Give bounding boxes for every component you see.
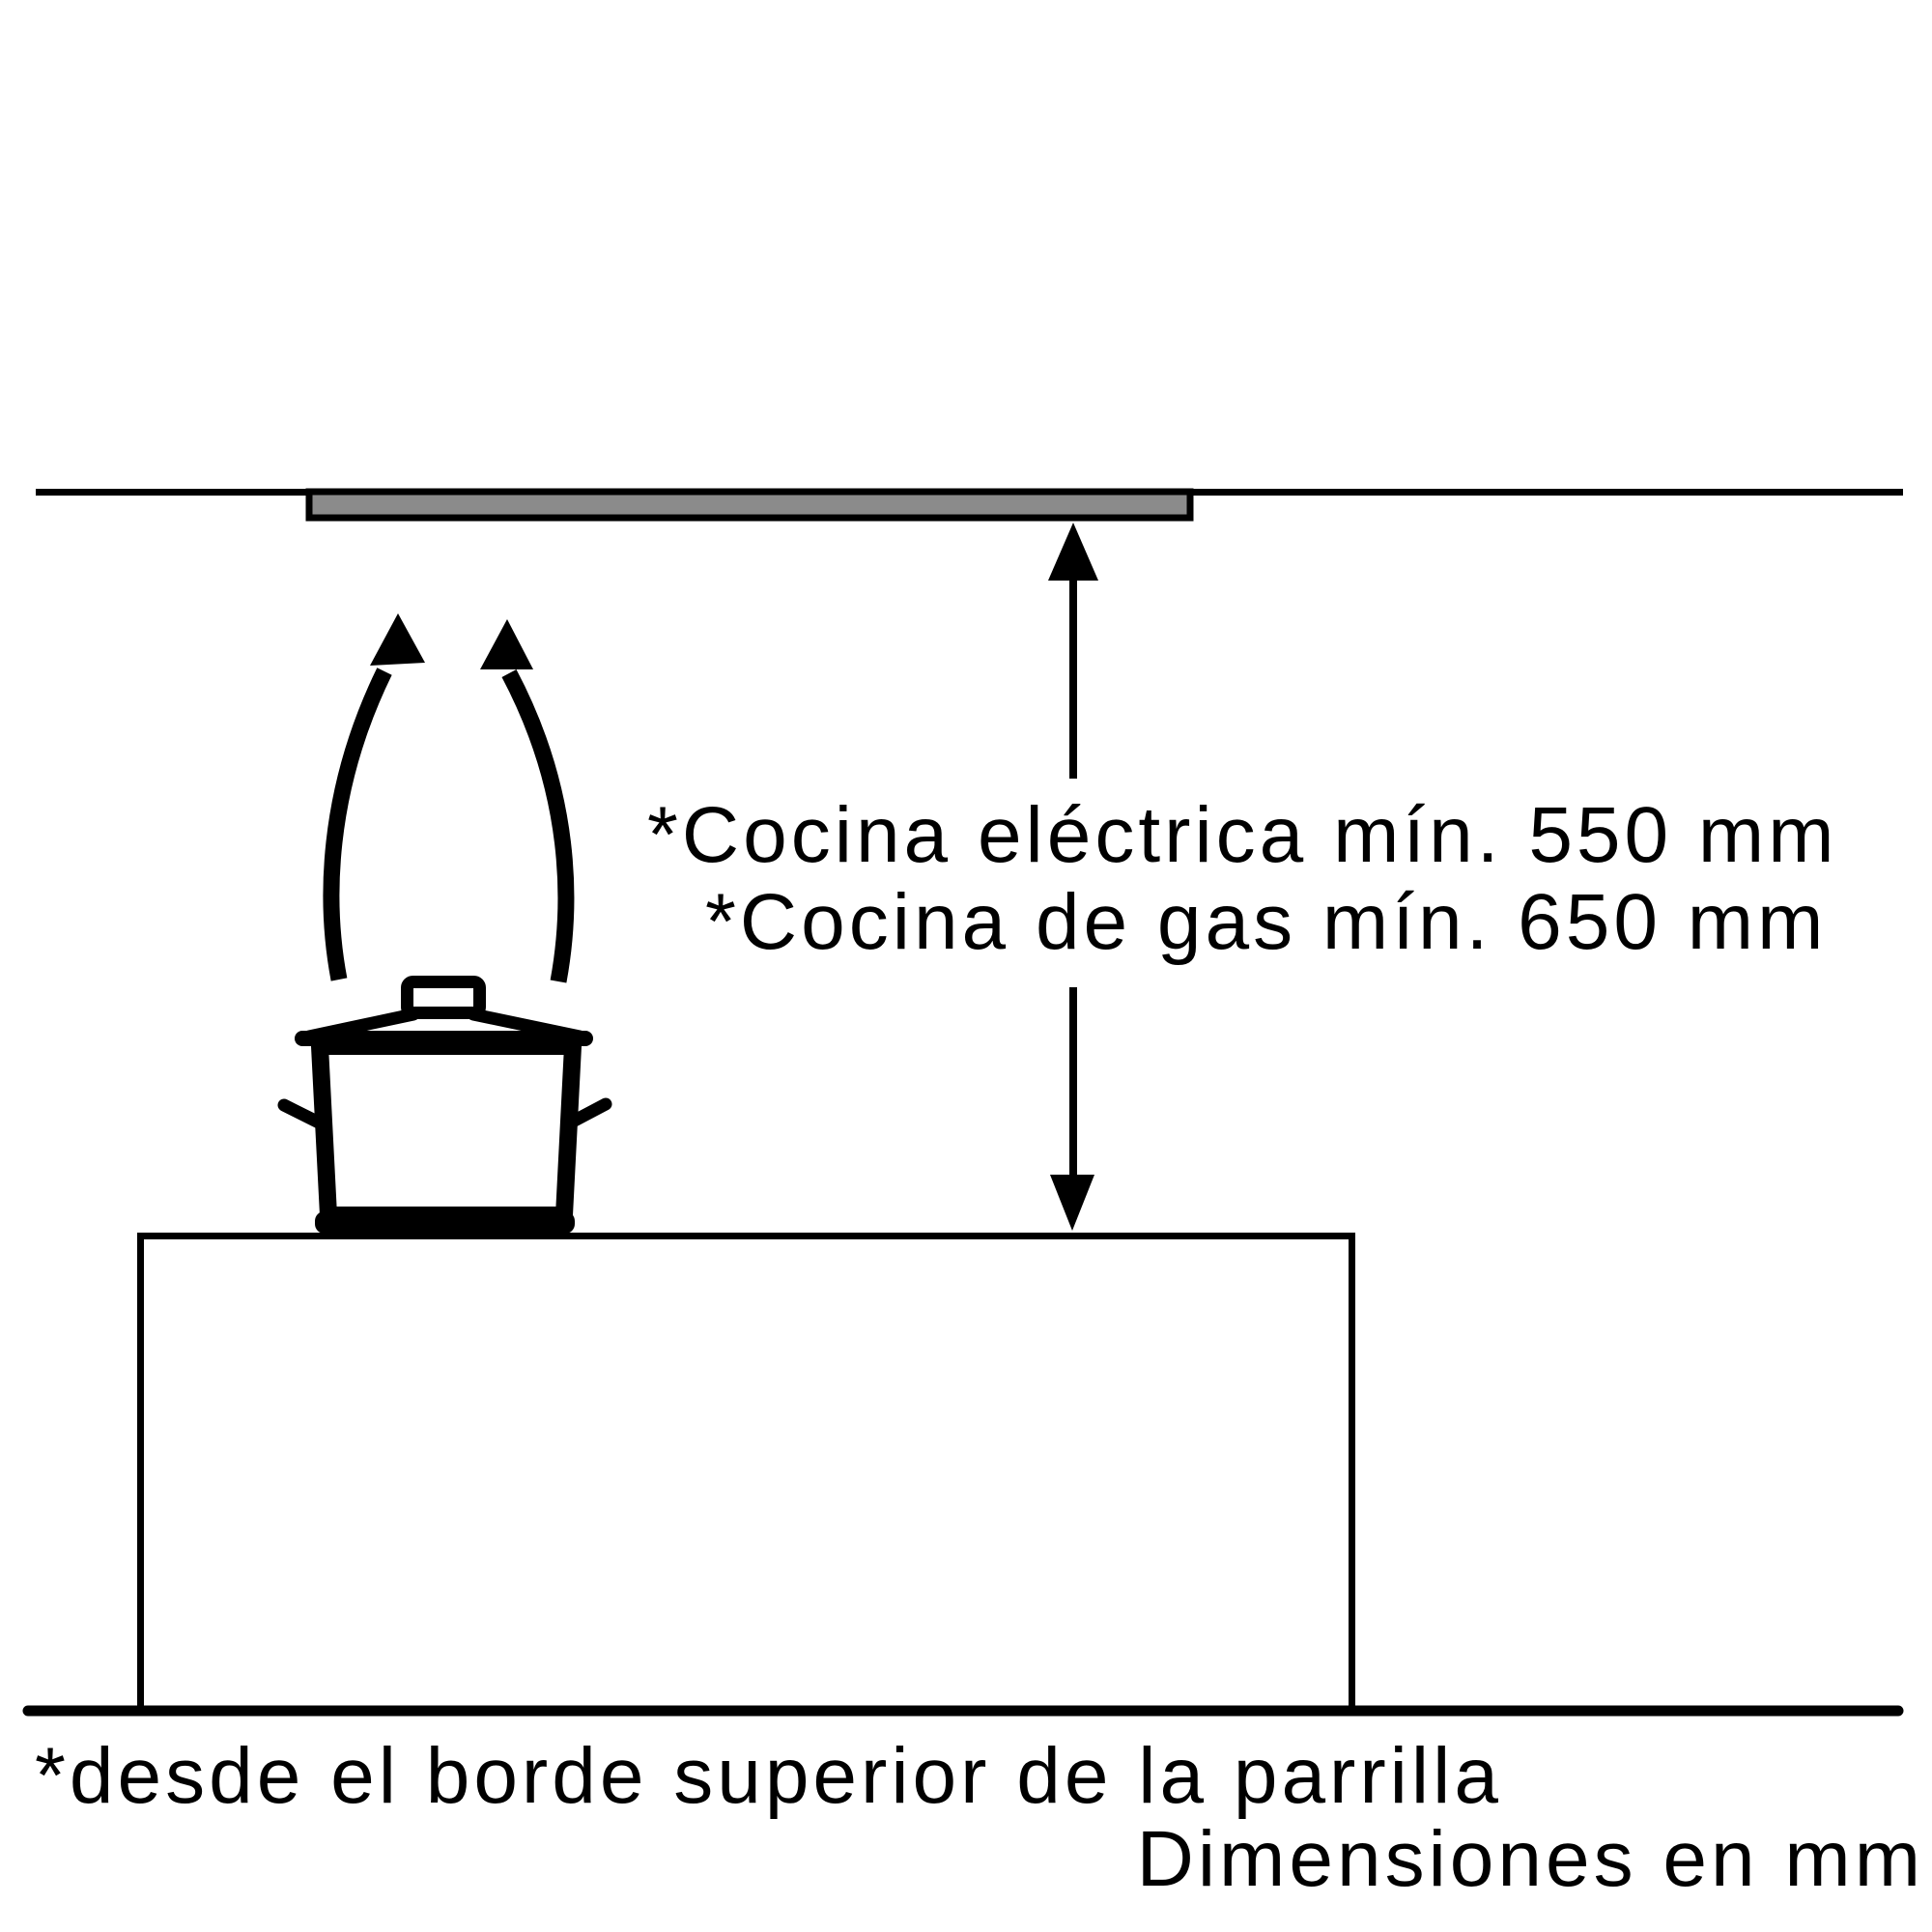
worktop-icon (141, 1236, 1352, 1712)
pot-base (315, 1211, 575, 1234)
steam-arrow-left-icon (331, 613, 425, 980)
pot-knob (408, 982, 480, 1013)
steam-arrow-left-head (370, 613, 425, 666)
cooking-pot-icon (284, 982, 606, 1235)
pot-body (320, 1046, 573, 1215)
dimension-arrow-head-top (1048, 523, 1098, 581)
dimension-arrow-head-bottom (1050, 1175, 1094, 1231)
grate-edge-footnote-label: *desde el borde superior de la parrilla (35, 1737, 1502, 1816)
steam-arrow-right-head (480, 619, 533, 669)
gas-cooker-min-distance-label: *Cocina de gas mín. 650 mm (705, 883, 1827, 962)
installation-diagram: *Cocina eléctrica mín. 550 mm *Cocina de… (0, 0, 1932, 1932)
steam-arrow-left-shaft (331, 671, 384, 980)
dimensions-units-label: Dimensiones en mm (1137, 1820, 1924, 1899)
steam-arrow-right-shaft (509, 673, 566, 981)
extractor-hood-icon (309, 492, 1190, 518)
pot-handle-left (284, 1105, 319, 1122)
diagram-canvas (0, 0, 1932, 1932)
electric-cooker-min-distance-label: *Cocina eléctrica mín. 550 mm (647, 796, 1838, 875)
steam-arrow-right-icon (480, 619, 566, 981)
